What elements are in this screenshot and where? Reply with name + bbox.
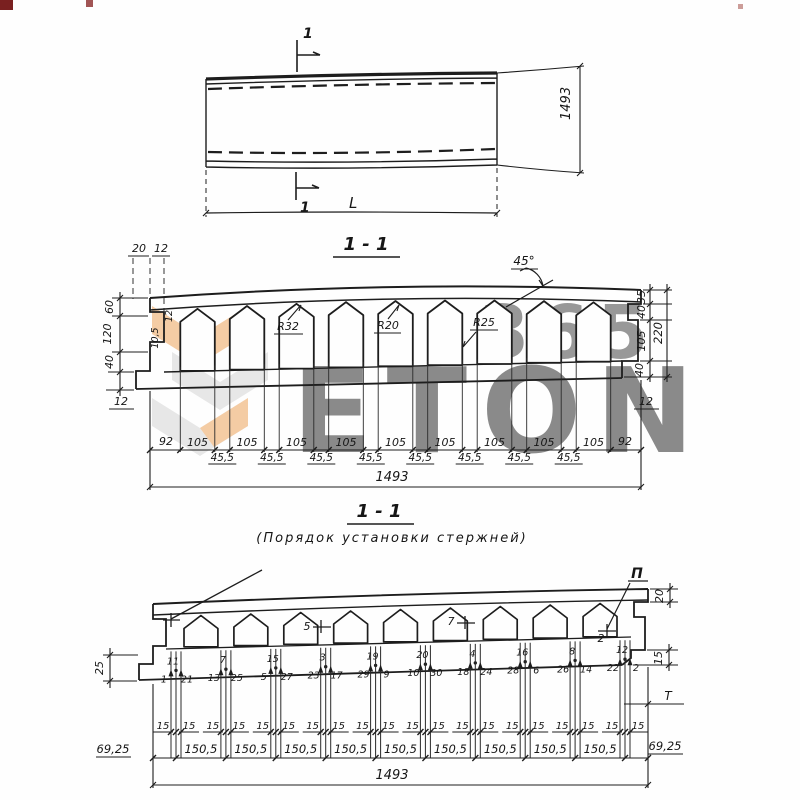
section-cut-label: 1 <box>303 26 313 42</box>
dim-label: 12 <box>154 242 168 255</box>
opening-dim-label: 105 <box>533 436 554 449</box>
offset-dim-label: 15 <box>282 721 295 732</box>
opening-shape <box>180 301 610 371</box>
offset-dim-label: 15 <box>332 721 345 732</box>
offset-dim-label: 15 <box>632 721 645 732</box>
dim-label: 20 <box>653 589 666 603</box>
rod-number: 16 <box>516 648 528 659</box>
section-2-generated: 1112115151372515155152715152331715152919… <box>150 604 651 762</box>
rib-dim-label: 45,5 <box>508 452 532 464</box>
rib-dim-label: 45,5 <box>557 452 581 464</box>
top-mark-label: 2 <box>598 632 605 645</box>
rib-dim-label: 45,5 <box>310 452 334 464</box>
dim-label: 220 <box>651 322 665 344</box>
opening-shape <box>184 604 617 647</box>
dim-label: 40 <box>633 363 646 377</box>
plan-width-label: 1493 <box>559 87 574 120</box>
dim-line <box>117 292 123 396</box>
rod-number: 12 <box>616 645 628 656</box>
dim-label: 15 <box>652 651 665 665</box>
offset-dim-label: 15 <box>556 721 569 732</box>
rod-number: 22 <box>607 663 619 674</box>
offset-dim-label: 15 <box>456 721 469 732</box>
pitch-dim-label: 150,5 <box>184 742 217 756</box>
pitch-dim-label: 150,5 <box>284 742 317 756</box>
pitch-dim-label: 150,5 <box>484 742 517 756</box>
rod-number: 19 <box>367 651 379 662</box>
scan-artifact <box>86 0 93 7</box>
top-mark-label: 7 <box>448 615 455 628</box>
offset-dim-label: 15 <box>183 721 196 732</box>
rod-number: 11 <box>167 656 179 667</box>
dim-label: 40 <box>635 305 648 319</box>
rod-number: 5 <box>261 672 267 683</box>
rib-dim-label: 45,5 <box>211 452 235 464</box>
dim-label: 120 <box>101 324 114 345</box>
section-title: 1 - 1 <box>343 234 388 255</box>
plan-dashed-edge <box>208 83 495 153</box>
dim-label: 35 <box>635 290 648 304</box>
rod-number: 1 <box>161 674 167 685</box>
pitch-dim-label: 150,5 <box>334 742 367 756</box>
offset-dim-label: 15 <box>157 721 170 732</box>
drawing-sheet: ETON 365 1 1 L 1493 1 - 1 10545,510545,5… <box>0 0 800 800</box>
rod-number: 28 <box>507 666 519 677</box>
dim-label: 40 <box>103 355 116 369</box>
pitch-dim-label: 150,5 <box>534 742 567 756</box>
opening-dim-label: 105 <box>434 436 455 449</box>
opening-dim-label: 105 <box>583 436 604 449</box>
offset-dim-label: 15 <box>206 721 219 732</box>
section-subtitle: (Порядок установки стержней) <box>256 531 527 546</box>
dim-label: 69,25 <box>649 739 682 753</box>
offset-dim-label: 15 <box>306 721 319 732</box>
offset-dim-label: 15 <box>356 721 369 732</box>
opening-dim-label: 105 <box>336 436 357 449</box>
plan-outline <box>206 73 497 168</box>
dim-line <box>107 648 113 688</box>
total-dim-label: 1493 <box>375 470 408 485</box>
pitch-dim-label: 150,5 <box>234 742 267 756</box>
scan-artifact <box>0 0 13 10</box>
dim-extension <box>103 655 138 681</box>
rod-number: 10 <box>407 668 419 679</box>
rib-dim-label: 45,5 <box>409 452 433 464</box>
section-1-1-rods: 1 - 1 (Порядок установки стержней) 11121… <box>93 501 684 788</box>
rod-number: 9 <box>384 669 390 680</box>
rod-line <box>171 640 630 758</box>
section-title: 1 - 1 <box>356 501 401 522</box>
total-dim-label: 1493 <box>375 768 408 783</box>
dim-label: 20 <box>132 242 146 255</box>
scan-artifact <box>738 4 743 9</box>
dim-label: 12 <box>164 310 175 322</box>
datum-label: П <box>631 566 643 582</box>
offset-dim-label: 15 <box>432 721 445 732</box>
rib-dim-label: 45,5 <box>260 452 284 464</box>
opening-dim-label: 105 <box>286 436 307 449</box>
pitch-dim-label: 150,5 <box>584 742 617 756</box>
length-label: L <box>349 194 357 212</box>
offset-dim-label: 15 <box>382 721 395 732</box>
profile-left-edge <box>139 604 166 680</box>
dim-label: 69,25 <box>97 742 130 756</box>
opening-dim-label: 105 <box>484 436 505 449</box>
dim-extension <box>133 258 164 311</box>
opening-dim-label: 105 <box>187 436 208 449</box>
section-cut-mark <box>296 40 320 200</box>
pitch-dim-label: 150,5 <box>384 742 417 756</box>
offset-dim-label: 15 <box>606 721 619 732</box>
offset-dim-label: 15 <box>482 721 495 732</box>
rod-number: 29 <box>358 669 370 680</box>
pitch-dim-label: 150,5 <box>434 742 467 756</box>
dim-label: 12 <box>114 395 128 408</box>
offset-dim-label: 15 <box>232 721 245 732</box>
rod-number: 26 <box>557 664 569 675</box>
rod-number: 20 <box>416 650 428 661</box>
offset-dim-label: 15 <box>532 721 545 732</box>
rib-dim-label: 45,5 <box>458 452 482 464</box>
angle-label: 45° <box>513 254 534 268</box>
section-cut-label: 1 <box>300 200 310 216</box>
radius-label: R25 <box>473 316 495 329</box>
rod-number: 6 <box>533 666 539 677</box>
dim-label: 60 <box>103 300 116 314</box>
tee-label: Т <box>664 689 673 703</box>
plan-view: 1 1 L 1493 <box>203 26 584 217</box>
dim-label: 92 <box>159 435 173 448</box>
rod-number: 18 <box>457 667 469 678</box>
radius-label: R20 <box>377 319 399 332</box>
top-mark-label: 5 <box>304 620 311 633</box>
opening-dim-label: 105 <box>237 436 258 449</box>
dim-label: 105 <box>635 331 648 352</box>
radius-label: R32 <box>277 320 299 333</box>
offset-dim-label: 15 <box>256 721 269 732</box>
tee-mark <box>624 701 684 707</box>
offset-dim-label: 15 <box>406 721 419 732</box>
offset-dim-label: 15 <box>582 721 595 732</box>
technical-drawing: ETON 365 1 1 L 1493 1 - 1 10545,510545,5… <box>0 0 800 800</box>
rod-number: 23 <box>308 671 320 682</box>
dim-label: 25 <box>93 661 106 675</box>
offset-dim-label: 15 <box>506 721 519 732</box>
rod-number: 15 <box>267 654 279 665</box>
dim-line <box>666 583 673 671</box>
rod-number: 13 <box>208 673 220 684</box>
opening-dim-label: 105 <box>385 436 406 449</box>
dim-label: 10,5 <box>150 327 161 348</box>
dim-label: 92 <box>618 435 632 448</box>
rib-dim-label: 45,5 <box>359 452 383 464</box>
